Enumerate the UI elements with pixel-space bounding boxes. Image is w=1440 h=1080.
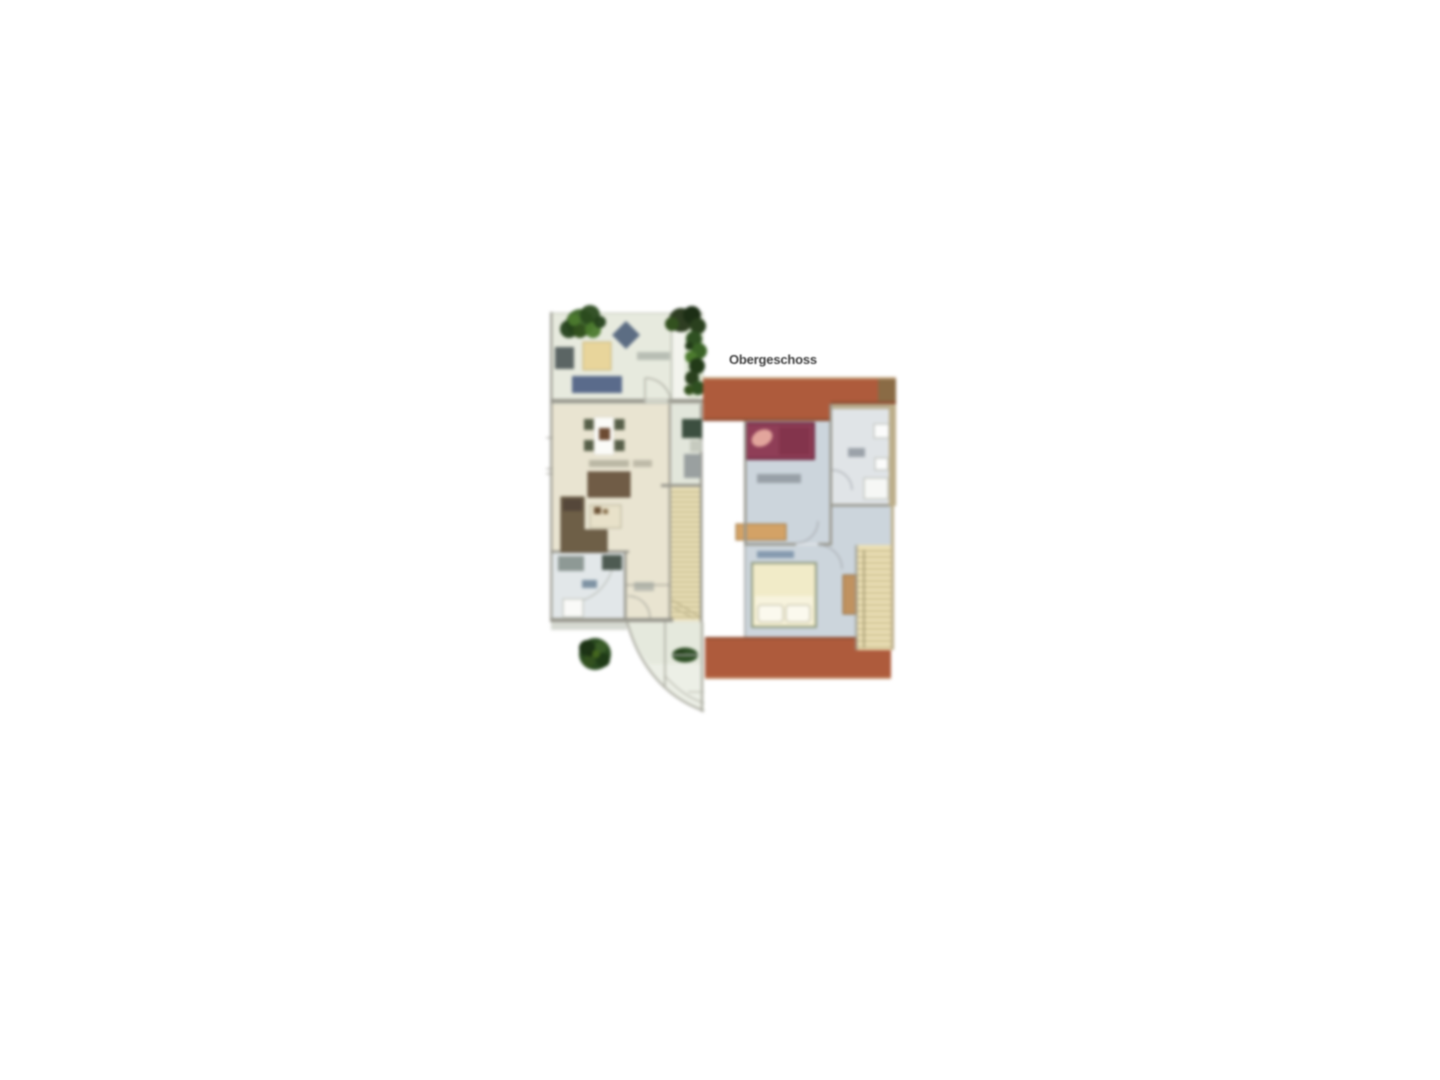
svg-text:Obergeschoss: Obergeschoss	[729, 352, 817, 367]
